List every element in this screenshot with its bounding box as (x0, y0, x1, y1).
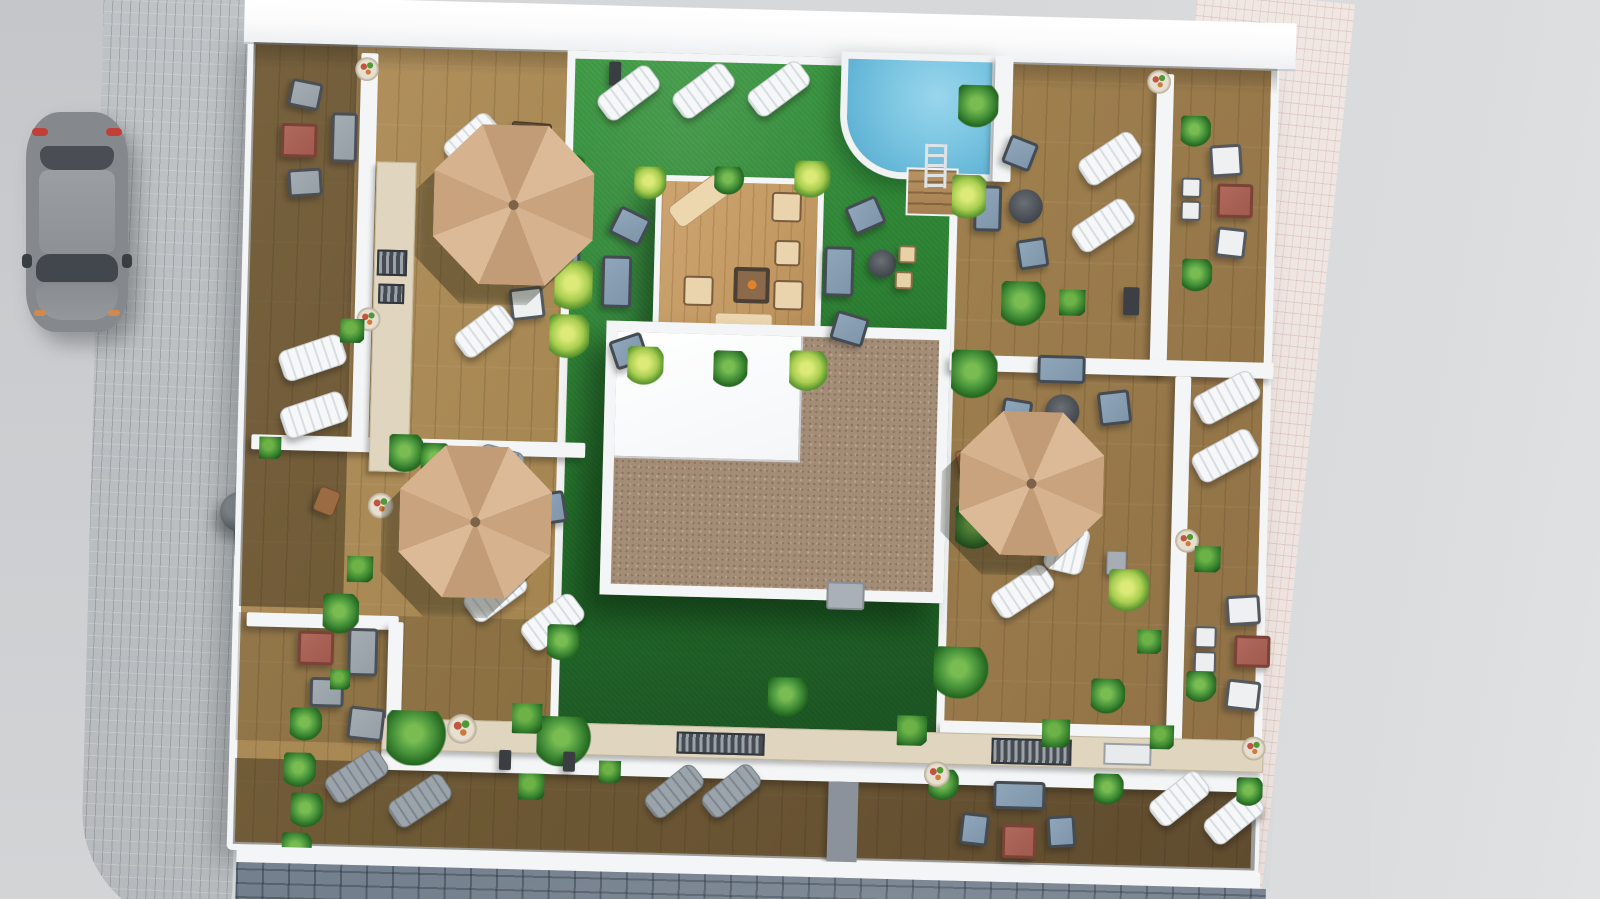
plant-green (958, 85, 999, 130)
sofa-gray (347, 628, 378, 677)
car-taillight-right (106, 128, 122, 136)
armchair-blue (1015, 237, 1049, 271)
table-red (1002, 824, 1037, 859)
deck-pouf (683, 275, 714, 306)
pouf-white (1181, 177, 1202, 198)
plant-green (386, 710, 447, 767)
topiary (1042, 719, 1071, 748)
topiary (1059, 289, 1086, 316)
sofa-blue (823, 246, 854, 297)
sofa-gray (331, 112, 358, 163)
table-round (1008, 189, 1043, 224)
table-red (1217, 183, 1254, 218)
bbq-grill (377, 249, 408, 276)
topiary (599, 760, 622, 783)
plant-green (1236, 777, 1263, 808)
sofa-blue (993, 781, 1046, 810)
parked-car (26, 112, 128, 332)
armchair-blue (959, 812, 990, 847)
pot-flowers (924, 761, 951, 788)
table-red (1234, 635, 1271, 668)
topiary (330, 669, 351, 690)
building (227, 34, 1280, 877)
wall-northeast-south (949, 354, 1273, 378)
car-mirror-right (122, 254, 132, 268)
deck-pouf (773, 280, 804, 311)
car-headlight-left (34, 310, 46, 316)
plant-green (933, 646, 989, 699)
lounger-white (1075, 128, 1145, 188)
pool-ladder (924, 144, 947, 189)
plant-green (714, 166, 745, 195)
armchair-gray (346, 705, 386, 742)
car-roof (39, 170, 115, 254)
car-mirror-left (22, 254, 32, 268)
pouf-beige (898, 245, 916, 263)
topiary (897, 715, 928, 746)
wall-northeast-west (1149, 74, 1174, 374)
car-hood (36, 284, 118, 320)
scene (0, 0, 1600, 899)
car-headlight-right (108, 310, 120, 316)
lounger-white (1189, 426, 1262, 486)
post-dark (563, 752, 576, 772)
deck-table-decor (747, 280, 756, 289)
pot-flowers (355, 57, 380, 82)
topiary (1194, 546, 1221, 573)
armchair-white (1209, 144, 1243, 178)
plant-green (1090, 678, 1125, 715)
ac-unit (826, 581, 865, 610)
plant-green (1001, 281, 1046, 328)
plant-yellow (789, 350, 828, 393)
plant-green (951, 350, 998, 401)
armchair-blue (1097, 389, 1133, 426)
armchair-white (1224, 678, 1261, 712)
topiary (1137, 629, 1162, 654)
deck-pouf (774, 240, 801, 267)
plant-yellow (1108, 569, 1149, 614)
plant-green (713, 350, 748, 389)
armchair-gray (287, 78, 324, 112)
post-dark (499, 750, 512, 770)
plant-yellow (951, 174, 986, 223)
plant-green (767, 677, 808, 718)
pergola-sun-deck (652, 175, 824, 345)
armchair-white (1214, 226, 1247, 259)
topiary (512, 703, 543, 734)
deck-coffee-table (733, 267, 770, 304)
topiary (340, 319, 365, 344)
table-red (298, 631, 335, 666)
plant-yellow (627, 346, 664, 387)
sofa-blue (1037, 355, 1086, 384)
outdoor-sink (1103, 743, 1152, 766)
car-taillight-left (32, 128, 48, 136)
car-windshield (36, 254, 118, 282)
armchair-white (1225, 594, 1261, 626)
plant-yellow (549, 314, 590, 361)
armchair-blue (1046, 815, 1076, 849)
bbq-grill (676, 731, 765, 755)
plant-green (389, 434, 424, 475)
sofa-blue (601, 255, 632, 308)
car-rear-window (40, 146, 114, 170)
plant-green (1093, 773, 1124, 806)
plant-yellow (634, 166, 667, 201)
bbq-grill (378, 284, 405, 305)
pot-flowers (446, 713, 477, 744)
plant-yellow (794, 160, 831, 199)
pouf-white (1194, 626, 1217, 649)
lounger-white (1068, 195, 1138, 255)
plant-green (289, 707, 322, 742)
topiary (259, 436, 282, 459)
plant-green (547, 624, 580, 663)
pouf-beige (895, 271, 913, 289)
topiary (1150, 725, 1175, 750)
lounger-white (451, 301, 517, 361)
plant-green (1182, 259, 1213, 294)
topiary (518, 773, 545, 800)
plant-green (1180, 115, 1211, 148)
pot-flowers (1147, 70, 1172, 95)
plant-green (283, 752, 316, 789)
armchair-gray (287, 168, 323, 198)
plant-green (1186, 671, 1217, 704)
table-red (281, 123, 318, 158)
wall-east-strip (1165, 376, 1191, 776)
concrete-pavement (1370, 0, 1600, 899)
pot-flowers (1241, 736, 1266, 761)
vent-dark (1123, 287, 1140, 315)
plant-green (290, 792, 323, 829)
topiary (347, 556, 374, 583)
pouf-white (1180, 200, 1201, 221)
